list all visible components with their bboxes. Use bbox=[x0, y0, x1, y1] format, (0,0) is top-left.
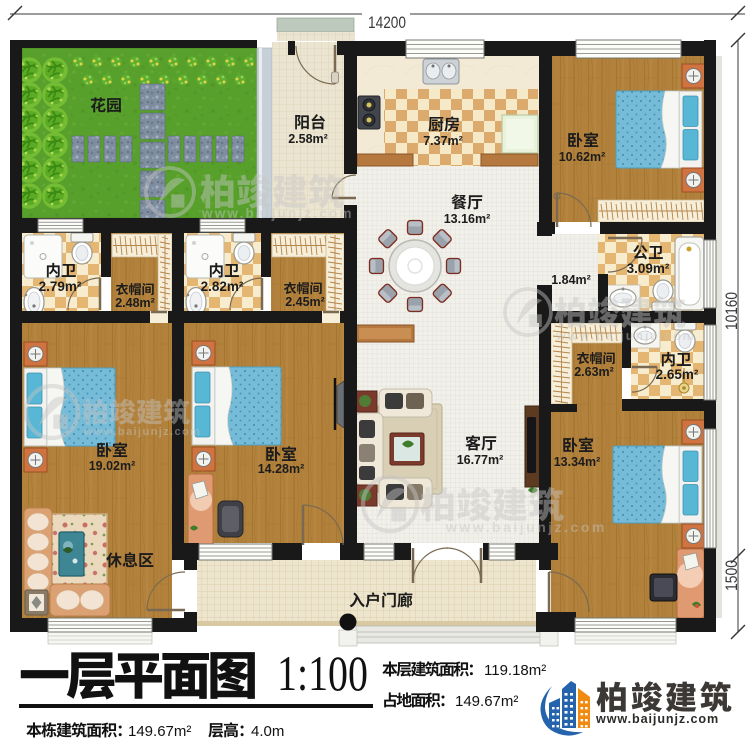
svg-text:2.63m²: 2.63m² bbox=[574, 365, 614, 379]
svg-text:14200: 14200 bbox=[368, 13, 406, 32]
svg-text:1500: 1500 bbox=[722, 560, 741, 591]
svg-text:10.62m²: 10.62m² bbox=[559, 150, 606, 164]
svg-text:2.45m²: 2.45m² bbox=[285, 295, 325, 309]
svg-text:14.28m²: 14.28m² bbox=[258, 462, 305, 476]
svg-text:www.baijunjz.com: www.baijunjz.com bbox=[555, 329, 696, 343]
svg-text:www.baijunjz.com: www.baijunjz.com bbox=[83, 426, 201, 438]
svg-text:16.77m²: 16.77m² bbox=[457, 453, 504, 467]
svg-text:www.baijunjz.com: www.baijunjz.com bbox=[201, 206, 354, 221]
svg-text:149.67m²: 149.67m² bbox=[455, 693, 518, 710]
svg-text:2.82m²: 2.82m² bbox=[201, 279, 244, 294]
svg-text:1:100: 1:100 bbox=[277, 645, 368, 701]
svg-text:2.58m²: 2.58m² bbox=[288, 132, 328, 146]
svg-text:149.67m²: 149.67m² bbox=[128, 723, 191, 740]
svg-text:10160: 10160 bbox=[722, 292, 741, 330]
svg-text:3.09m²: 3.09m² bbox=[627, 261, 670, 276]
svg-text:19.02m²: 19.02m² bbox=[89, 459, 136, 473]
svg-text:1.84m²: 1.84m² bbox=[551, 273, 591, 287]
svg-text:www.baijunjz.com: www.baijunjz.com bbox=[445, 519, 607, 535]
svg-text:www.baijunjz.com: www.baijunjz.com bbox=[595, 712, 719, 726]
svg-text:4.0m: 4.0m bbox=[251, 723, 284, 740]
svg-text:13.34m²: 13.34m² bbox=[554, 455, 601, 469]
svg-text:7.37m²: 7.37m² bbox=[423, 134, 463, 148]
svg-text:119.18m²: 119.18m² bbox=[484, 662, 546, 679]
svg-text:2.79m²: 2.79m² bbox=[39, 279, 82, 294]
svg-text:2.65m²: 2.65m² bbox=[656, 367, 699, 382]
svg-text:13.16m²: 13.16m² bbox=[444, 212, 491, 226]
svg-text:2.48m²: 2.48m² bbox=[115, 296, 155, 310]
